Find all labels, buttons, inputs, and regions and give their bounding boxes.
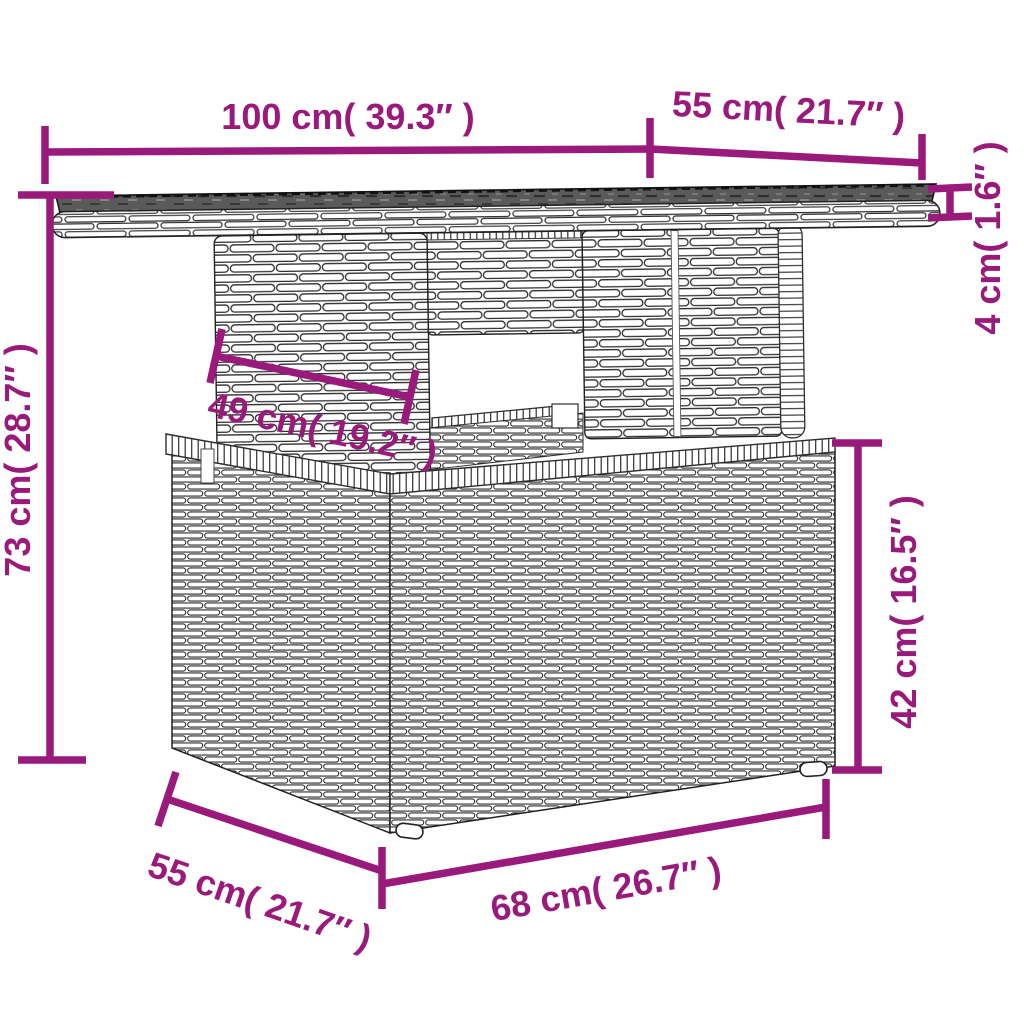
label-base-height: 42 cm( 16.5″ ) bbox=[883, 495, 924, 728]
right-leg-panel bbox=[582, 228, 782, 439]
tabletop bbox=[52, 184, 940, 238]
label-top-depth: 55 cm( 21.7″ ) bbox=[671, 83, 906, 136]
leg-corner-tube bbox=[778, 224, 805, 438]
right-foot bbox=[800, 761, 828, 777]
rim-connector bbox=[552, 404, 578, 428]
base-post bbox=[201, 449, 214, 483]
apron-bridge bbox=[427, 231, 583, 335]
base-left-face bbox=[172, 452, 390, 833]
label-top-thickness: 4 cm( 1.6″ ) bbox=[967, 141, 1008, 334]
label-overall-height: 73 cm( 28.7″ ) bbox=[0, 343, 38, 576]
base-front-face bbox=[390, 450, 835, 833]
dimension-diagram: 100 cm( 39.3″ ) 55 cm( 21.7″ ) 4 cm( 1.6… bbox=[0, 0, 1024, 1024]
dim-top-depth bbox=[650, 134, 922, 180]
base-box bbox=[166, 434, 835, 840]
label-top-width: 100 cm( 39.3″ ) bbox=[221, 96, 474, 137]
dim-base-height bbox=[832, 443, 882, 770]
diagram-canvas: 100 cm( 39.3″ ) 55 cm( 21.7″ ) 4 cm( 1.6… bbox=[0, 0, 1024, 1024]
front-foot bbox=[395, 822, 424, 839]
